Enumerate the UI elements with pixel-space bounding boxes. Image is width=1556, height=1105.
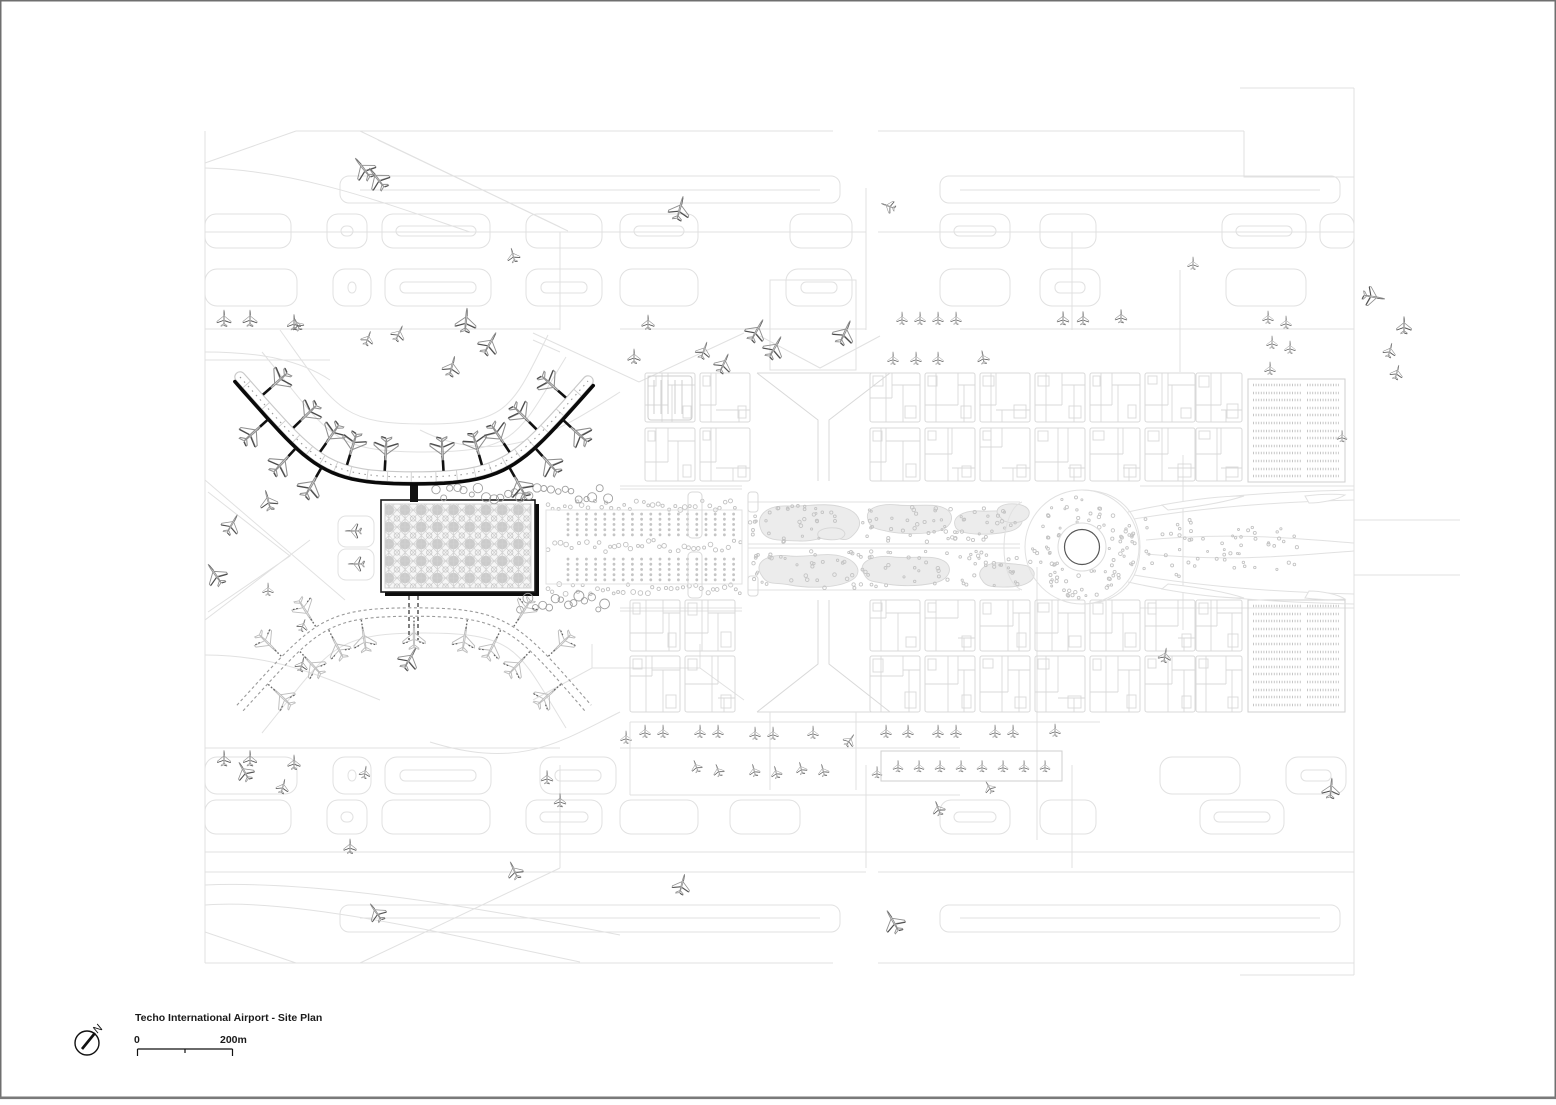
svg-text:200m: 200m	[220, 1034, 247, 1046]
svg-text:Techo International Airport -: Techo International Airport - Site Plan	[135, 1012, 322, 1024]
svg-text:0: 0	[134, 1034, 140, 1046]
